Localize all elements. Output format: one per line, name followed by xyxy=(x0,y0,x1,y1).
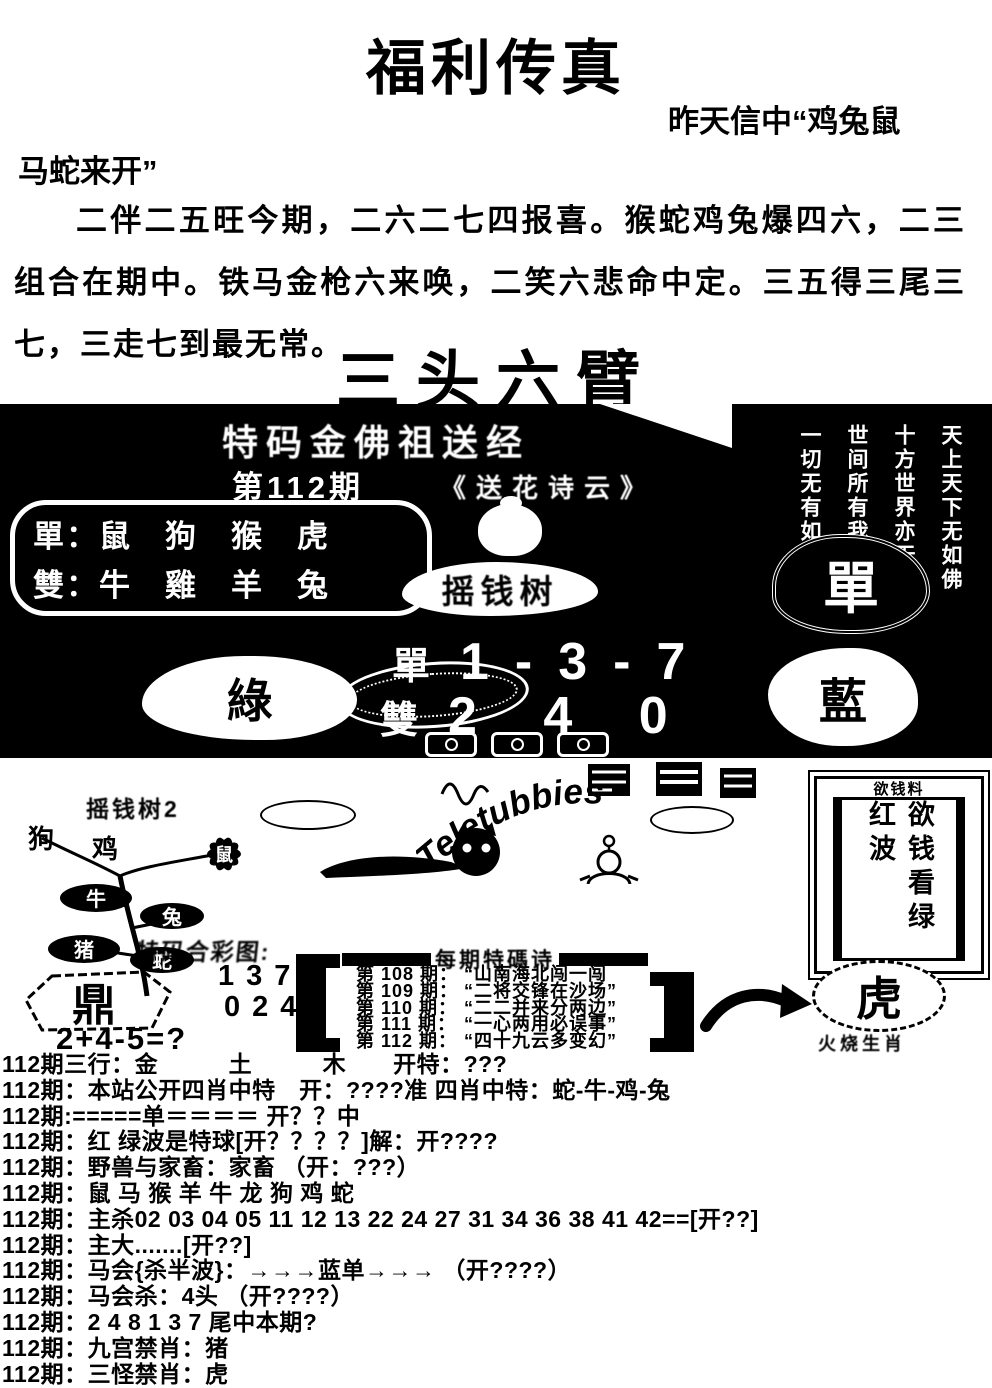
prediction-line: 112期：野兽与家畜：家畜 （开：???） xyxy=(2,1155,992,1181)
prediction-line: 112期三行：金 土 木 开特：??? xyxy=(2,1052,992,1078)
yesterday-note-line2: 马蛇来开” xyxy=(18,146,158,191)
prediction-line: 112期：2 4 8 1 3 7 尾中本期? xyxy=(2,1310,992,1336)
page-title: 福利传真 xyxy=(0,20,992,107)
blue-wave-blob: 藍 xyxy=(768,648,918,746)
prediction-line: 112期：本站公开四肖中特 开：????准 四肖中特：蛇-牛-鸡-兔 xyxy=(2,1078,992,1104)
buddha-banner: 特码金佛祖送经 第112期 《送花诗云》 單：鼠 狗 猴 虎 雙：牛 雞 羊 兔… xyxy=(0,404,992,758)
green-wave-blob: 綠 xyxy=(142,656,357,740)
yesterday-note-line1: 昨天信中“鸡兔鼠 xyxy=(668,96,901,141)
period-number: 第 112 期： xyxy=(356,1033,464,1050)
periods-list: 第 108 期： “山南海北闯一闯 第 109 期： “二将交锋在沙场” 第 1… xyxy=(356,966,644,1050)
prediction-line: 112期：九宫禁肖：猪 xyxy=(2,1336,992,1362)
even-zodiac-row: 雙：牛 雞 羊 兔 xyxy=(33,560,427,605)
banner-title: 特码金佛祖送经 xyxy=(222,414,530,466)
tree-animal-chicken: 鸡 xyxy=(91,834,118,864)
tiger-char: 虎 xyxy=(856,963,902,1029)
prediction-line: 112期：主杀02 03 04 05 11 12 13 22 24 27 31 … xyxy=(2,1207,992,1233)
money-box-inner: 欲钱看绿红波 xyxy=(833,797,965,961)
period-row: 第 112 期： “四十九云多变幻” xyxy=(356,1033,644,1050)
tree-animal-rabbit: 兔 xyxy=(161,905,182,929)
prediction-line: 112期：鼠 马 猴 羊 牛 龙 狗 鸡 蛇 xyxy=(2,1181,992,1207)
odd-zodiac-row: 單：鼠 狗 猴 虎 xyxy=(33,511,427,556)
bracket-right-icon xyxy=(650,972,694,1052)
tree-animal-pig: 猪 xyxy=(74,938,94,962)
tree-animal-dog: 狗 xyxy=(28,824,54,854)
money-box-header: 欲钱料 xyxy=(817,778,981,799)
period-phrase: “四十九云多变幻” xyxy=(464,1033,617,1050)
tree-animal-ox: 牛 xyxy=(86,887,106,911)
buddha-head-icon xyxy=(478,504,542,556)
prediction-lines: 112期三行：金 土 木 开特：??? 112期：本站公开四肖中特 开：????… xyxy=(2,1052,992,1387)
coin-icon xyxy=(425,732,477,757)
tree-animal-rat: 鼠 xyxy=(215,844,233,865)
prediction-line: 112期:=====单＝＝＝＝ 开？？中 xyxy=(2,1104,992,1130)
coin-icon xyxy=(491,732,543,757)
past-periods-box: 每期特碼诗 第 108 期： “山南海北闯一闯 第 109 期： “二将交锋在沙… xyxy=(296,946,694,1052)
big-odd-char: 單 xyxy=(823,544,879,625)
teletubbies-arch: Teletubbies xyxy=(416,772,728,880)
money-tree-blob: 摇钱树 xyxy=(402,562,598,616)
arrow-icon xyxy=(700,976,815,1036)
prediction-line: 112期：主大.......[开??] xyxy=(2,1233,992,1259)
money-tree-label: 摇钱树 xyxy=(442,565,559,613)
banner-notch-decoration xyxy=(600,404,732,448)
money-advice-box: 欲钱料 欲钱看绿红波 xyxy=(814,776,984,974)
banner-subtitle: 《送花诗云》 xyxy=(440,468,656,505)
coin-row-icon xyxy=(425,732,609,757)
prediction-line: 112期：马会{杀半波}：→→→蓝单→→→ （开????） xyxy=(2,1258,992,1284)
coin-icon xyxy=(557,732,609,757)
tiger-cloud-ring: 虎 xyxy=(812,960,946,1032)
prediction-line: 112期：三怪禁肖：虎 xyxy=(2,1362,992,1388)
number-row-top: 137 xyxy=(218,960,302,993)
bracket-left-icon xyxy=(296,954,340,1052)
prediction-line: 112期：马会杀：4头 （开????） xyxy=(2,1284,992,1310)
fortune-fax-page: 福利传真 昨天信中“鸡兔鼠 马蛇来开” 二伴二五旺今期，二六二七四报喜。猴蛇鸡兔… xyxy=(0,0,992,1388)
teletubby-figure-icon xyxy=(576,834,642,884)
odd-even-zodiac-box: 單：鼠 狗 猴 虎 雙：牛 雞 羊 兔 xyxy=(10,500,432,616)
money-box-text: 欲钱看绿红波 xyxy=(860,800,938,958)
verse-column-1: 天上天下无如佛 xyxy=(936,424,966,599)
prediction-line: 112期：红 绿波是特球[开？？？？]解：开???? xyxy=(2,1129,992,1155)
flower-icon: 鼠 xyxy=(206,836,242,873)
